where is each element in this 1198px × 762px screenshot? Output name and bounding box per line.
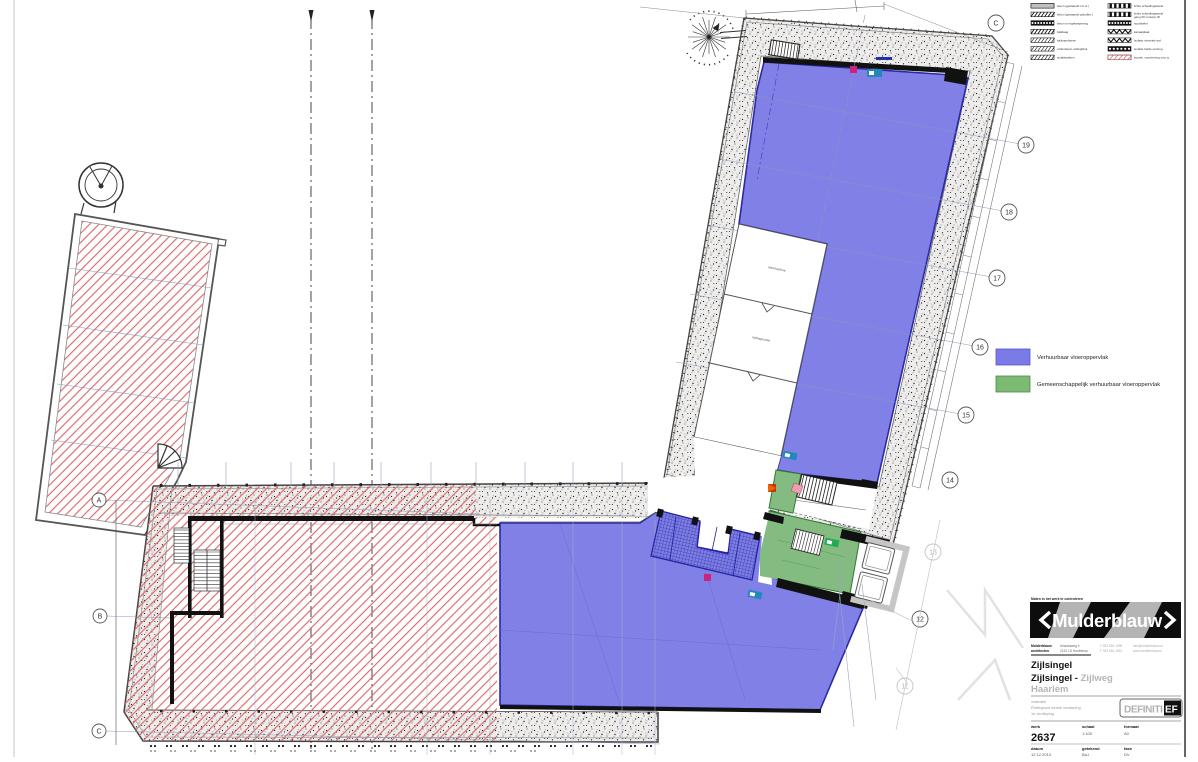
svg-text:info@mulderblauw.nl: info@mulderblauw.nl [1133,644,1163,648]
svg-text:kanaalplaat: kanaalplaat [1134,30,1150,34]
svg-text:gang 60 minuten W: gang 60 minuten W [1134,15,1160,19]
svg-text:12: 12 [916,617,924,624]
svg-text:balklaag: balklaag [1057,30,1069,34]
svg-text:C: C [96,729,101,736]
svg-text:B: B [98,614,103,621]
svg-text:T 023 554 1990: T 023 554 1990 [1100,644,1123,648]
svg-text:Mulderblauw: Mulderblauw [1031,644,1052,648]
svg-text:2637: 2637 [1031,732,1055,744]
svg-text:onderdeel: onderdeel [1031,700,1046,704]
svg-text:houtskelet: houtskelet [1134,21,1148,25]
svg-text:werk: werk [1030,724,1041,729]
svg-text:DV: DV [1124,752,1130,757]
svg-text:schaal: schaal [1082,724,1094,729]
svg-text:isolatieplaten: isolatieplaten [1057,56,1075,60]
svg-text:Zijlsingel - Zijlweg: Zijlsingel - Zijlweg [1031,673,1113,684]
svg-text:beton (gestapeld grindbet.): beton (gestapeld grindbet.) [1057,13,1093,17]
svg-text:C: C [993,21,998,28]
svg-text:fase: fase [1124,746,1133,751]
svg-text:1e verdieping: 1e verdieping [1031,712,1054,716]
svg-text:15: 15 [962,413,970,420]
svg-text:12.12.2013: 12.12.2013 [1031,752,1052,757]
svg-text:18: 18 [1005,210,1013,217]
svg-text:Gemeenschappelijk verhuurbaar: Gemeenschappelijk verhuurbaar vloeropper… [1037,382,1160,388]
svg-text:2132 LD Hoofddorp: 2132 LD Hoofddorp [1060,649,1088,653]
svg-text:bouwk. voorziening voor g.: bouwk. voorziening voor g. [1134,56,1170,60]
svg-text:www.mulderblauw.nl: www.mulderblauw.nl [1133,649,1162,653]
svg-text:formaat: formaat [1124,724,1139,729]
svg-text:datum: datum [1031,746,1043,751]
svg-text:Ba-I: Ba-I [1082,752,1089,757]
svg-text:1:100: 1:100 [1082,731,1093,736]
svg-text:Verhuurbaar vloeroppervlak: Verhuurbaar vloeroppervlak [1037,355,1108,361]
svg-text:isolatie harde persing: isolatie harde persing [1134,47,1163,51]
svg-text:A: A [97,498,102,505]
svg-text:Maten in het werk te controler: Maten in het werk te controleren [1031,597,1083,601]
svg-text:Mulderblauw: Mulderblauw [1052,610,1163,631]
svg-text:14: 14 [946,478,954,485]
svg-text:getekend: getekend [1082,746,1100,751]
svg-text:lichte scheidingswand: lichte scheidingswand [1134,4,1164,8]
svg-text:beton in regelwapening: beton in regelwapening [1057,21,1088,25]
svg-text:Arlandaweg 4: Arlandaweg 4 [1060,644,1080,648]
svg-text:16: 16 [976,345,984,352]
svg-text:cellenbeton vellingblok: cellenbeton vellingblok [1057,47,1088,51]
svg-text:19: 19 [1022,143,1030,150]
svg-text:DEFINITI: DEFINITI [1124,705,1163,716]
svg-text:Plattegrond eerste verdieping: Plattegrond eerste verdieping [1031,706,1081,710]
svg-text:F 023 554 1991: F 023 554 1991 [1100,649,1123,653]
svg-text:A0: A0 [1124,731,1130,736]
svg-text:kalkzandsteen: kalkzandsteen [1057,39,1077,43]
svg-text:isolatie minerale wol: isolatie minerale wol [1134,39,1161,43]
svg-text:EF: EF [1165,705,1178,716]
svg-text:Haarlem: Haarlem [1031,684,1069,695]
svg-text:architecten: architecten [1031,649,1049,653]
svg-text:beton (gestapeld c.b.w.): beton (gestapeld c.b.w.) [1057,4,1089,8]
svg-text:Zijlsingel: Zijlsingel [1031,660,1072,671]
svg-text:17: 17 [993,276,1001,283]
